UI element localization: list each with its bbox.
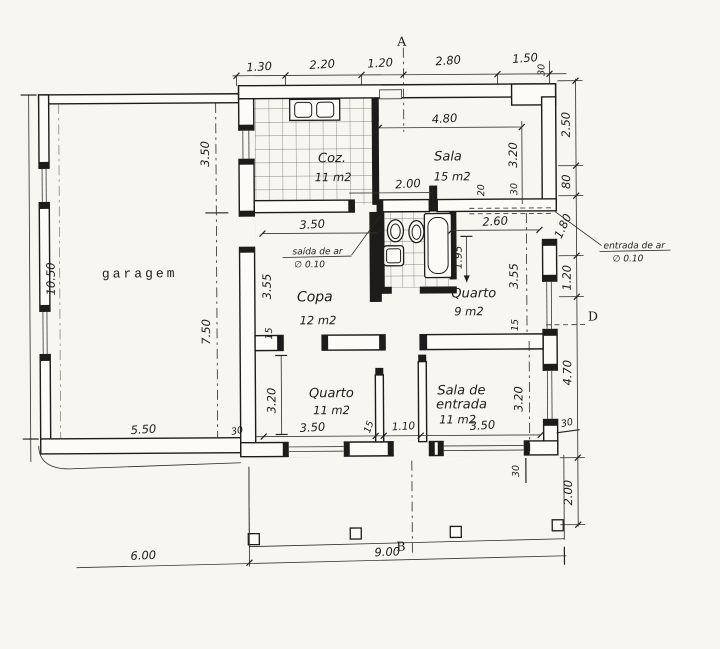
air-inlet-label: entrada de ar <box>604 241 667 251</box>
dim-top-5: 1.50 <box>512 50 539 66</box>
dim-quarto9-wall: 15 <box>510 319 521 331</box>
copa-label: Copa <box>297 289 333 305</box>
dim-right-1: 2.50 <box>559 112 573 138</box>
sala-label: Sala <box>434 149 462 164</box>
bottom-dimension-line: 6.00 9.00 30 <box>76 458 567 568</box>
dim-garage-v2: 7.50 <box>199 319 213 345</box>
dim-copa-w: 3.50 <box>299 217 325 232</box>
dim-garage-wall: 30 <box>230 425 244 438</box>
dim-quarto9-w: 2.60 <box>482 213 508 228</box>
dim-sala-w: 4.80 <box>431 111 457 126</box>
air-outlet-dia: ∅ 0.10 <box>294 260 325 270</box>
sala-area: 15 m2 <box>434 169 471 183</box>
entrada-label-2: entrada <box>436 397 487 412</box>
dim-top-3: 1.20 <box>367 55 393 70</box>
dim-top-4: 2.80 <box>435 53 462 69</box>
copa-room: Copa 12 m2 3.50 3.55 15 <box>259 216 381 339</box>
dim-copa-h: 3.55 <box>260 274 274 300</box>
dim-top-2: 2.20 <box>309 56 335 71</box>
dim-sala-hall: 2.00 <box>395 176 421 191</box>
quarto11-area: 11 m2 <box>313 403 350 417</box>
section-line-b: B <box>396 461 413 554</box>
entrada-label-1: Sala de <box>437 383 485 398</box>
quarto9-room: Quarto 9 m2 2.60 1.95 3.55 15 <box>448 213 543 331</box>
dim-copa-wall: 15 <box>264 327 275 339</box>
dim-garage-w: 5.50 <box>130 422 156 437</box>
air-outlet-annotation: saída de ar ∅ 0.10 <box>282 217 379 271</box>
copa-area: 12 m2 <box>300 313 337 327</box>
air-outlet-label: saída de ar <box>292 247 343 257</box>
floor-plan-canvas: A B D 1.30 2.20 1.20 2.80 1.50 30 2.50 <box>0 0 720 649</box>
garage-house-shared-wall <box>238 86 257 456</box>
dim-quarto11-door: 1.10 <box>391 420 415 433</box>
dim-quarto11-h: 3.20 <box>264 388 278 414</box>
garage-room: garagem 3.50 7.50 5.50 30 <box>101 141 244 439</box>
dim-quarto11-w: 3.50 <box>299 420 325 435</box>
dim-entrada-h: 3.20 <box>511 386 525 412</box>
dim-left-1: 10.50 <box>44 262 58 295</box>
quarto9-label: Quarto <box>451 286 496 301</box>
kitchen-sink <box>290 99 340 120</box>
dim-right-2: 80 <box>559 174 573 189</box>
garage-label: garagem <box>102 266 178 281</box>
dim-bottom-1: 6.00 <box>130 548 156 563</box>
quarto11-label: Quarto <box>309 386 354 401</box>
dim-top-wall: 30 <box>536 64 547 76</box>
dim-right-5: 4.70 <box>560 360 574 386</box>
kitchen-label: Coz. <box>318 151 346 166</box>
dim-bottom-wall: 30 <box>511 465 522 477</box>
dim-sala-h: 3.20 <box>506 142 520 168</box>
dim-top-1: 1.30 <box>246 59 272 74</box>
dim-right-4: 1.20 <box>560 265 574 291</box>
top-dimension-line: 1.30 2.20 1.20 2.80 1.50 30 <box>232 50 566 86</box>
bidet <box>409 221 424 243</box>
dim-garage-v1: 3.50 <box>198 141 212 167</box>
dim-right-6: 2.00 <box>561 480 575 506</box>
dim-sala-ledge: 20 <box>476 184 487 196</box>
section-line-a: A <box>396 34 408 132</box>
toilet <box>387 220 403 242</box>
dim-quarto11-wall: 15 <box>362 420 376 435</box>
dim-sala-wall: 30 <box>509 183 520 195</box>
dim-right-wall: 30 <box>560 417 574 430</box>
floor-plan-page: A B D 1.30 2.20 1.20 2.80 1.50 30 2.50 <box>0 0 720 649</box>
washbasin <box>384 246 404 266</box>
dim-quarto9-h: 3.55 <box>507 263 521 289</box>
section-marker-a: A <box>396 34 407 49</box>
kitchen-area: 11 m2 <box>315 170 352 184</box>
quarto11-room: Quarto 11 m2 3.20 3.50 15 1.10 <box>255 354 544 440</box>
bathtub <box>424 213 451 277</box>
quarto9-area: 9 m2 <box>454 304 484 318</box>
dim-quarto9-closet: 1.95 <box>453 245 465 269</box>
air-inlet-dia: ∅ 0.10 <box>613 254 644 264</box>
section-marker-d: D <box>588 309 598 324</box>
dim-bottom-2: 9.00 <box>374 544 400 559</box>
dim-entrada-w: 3.50 <box>469 418 495 433</box>
